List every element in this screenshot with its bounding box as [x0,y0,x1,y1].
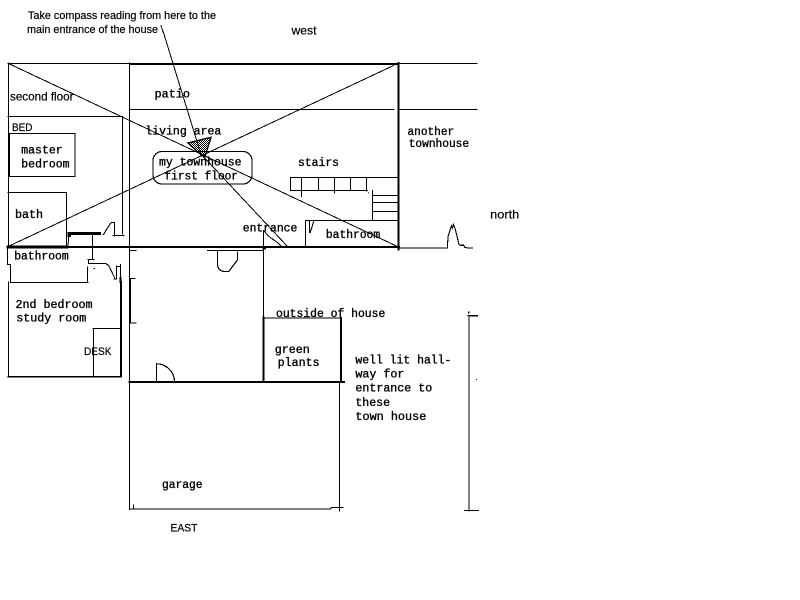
svg-text:bathroom: bathroom [14,251,69,264]
svg-text:2nd bedroom: 2nd bedroom [16,299,93,312]
svg-text:plants: plants [278,357,320,370]
svg-text:garage: garage [162,479,203,492]
svg-text:DESK: DESK [84,346,112,358]
svg-text:bath: bath [15,209,43,222]
svg-text:bedroom: bedroom [21,158,69,171]
svg-text:green: green [275,344,310,357]
svg-text:another: another [408,126,455,139]
svg-text:west: west [290,24,317,38]
svg-text:EAST: EAST [171,523,198,535]
svg-text:bathroom: bathroom [326,229,380,242]
svg-text:BED: BED [12,122,33,134]
svg-text:study room: study room [16,313,86,326]
svg-text:these: these [355,397,390,410]
svg-text:main entrance of the house: main entrance of the house [27,24,158,36]
svg-text:living area: living area [145,126,221,139]
svg-text:master: master [21,144,62,157]
svg-text:well lit hall-: well lit hall- [355,354,451,367]
svg-text:stairs: stairs [298,157,339,170]
svg-text:entrance: entrance [243,222,298,235]
svg-text:townhouse: townhouse [409,138,469,151]
svg-text:patio: patio [155,89,191,102]
svg-text:north: north [490,208,519,222]
svg-text:my townhouse: my townhouse [159,157,242,170]
svg-text:way for: way for [355,369,404,382]
svg-text:entrance to: entrance to [355,383,432,396]
svg-text:Take compass reading from here: Take compass reading from here to the [28,10,216,22]
svg-text:town house: town house [355,411,426,424]
svg-text:first floor: first floor [165,171,239,184]
svg-text:outside of house: outside of house [276,308,385,321]
svg-text:second floor: second floor [10,90,74,104]
